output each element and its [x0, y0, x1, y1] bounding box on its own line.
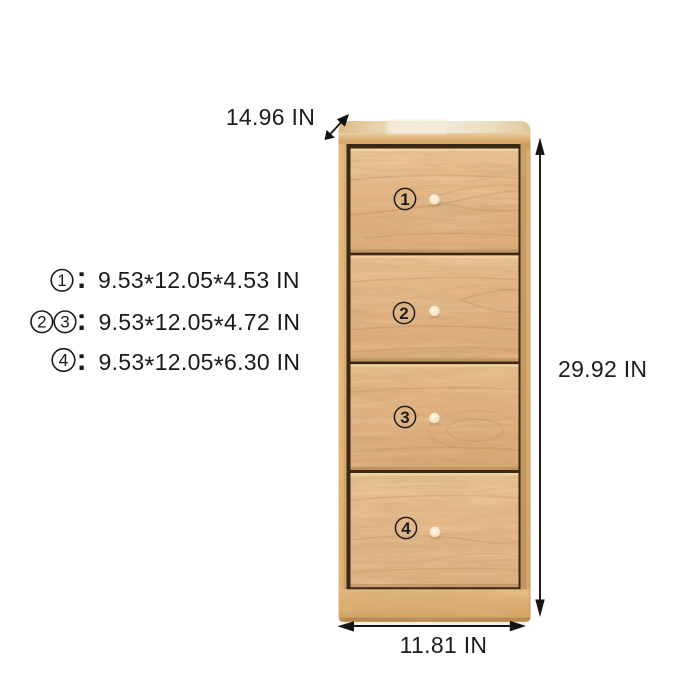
svg-text:2: 2: [399, 304, 408, 323]
svg-text:4: 4: [401, 519, 411, 538]
svg-text:3: 3: [400, 408, 409, 427]
svg-text:29.92 IN: 29.92 IN: [558, 356, 647, 382]
svg-text:1: 1: [57, 271, 66, 290]
svg-text:1: 1: [400, 190, 409, 209]
svg-text:3: 3: [60, 313, 69, 332]
svg-text:2: 2: [37, 313, 46, 332]
svg-text:14.96 IN: 14.96 IN: [226, 104, 315, 130]
svg-text:11.81 IN: 11.81 IN: [400, 632, 488, 658]
svg-text:4: 4: [59, 350, 69, 370]
